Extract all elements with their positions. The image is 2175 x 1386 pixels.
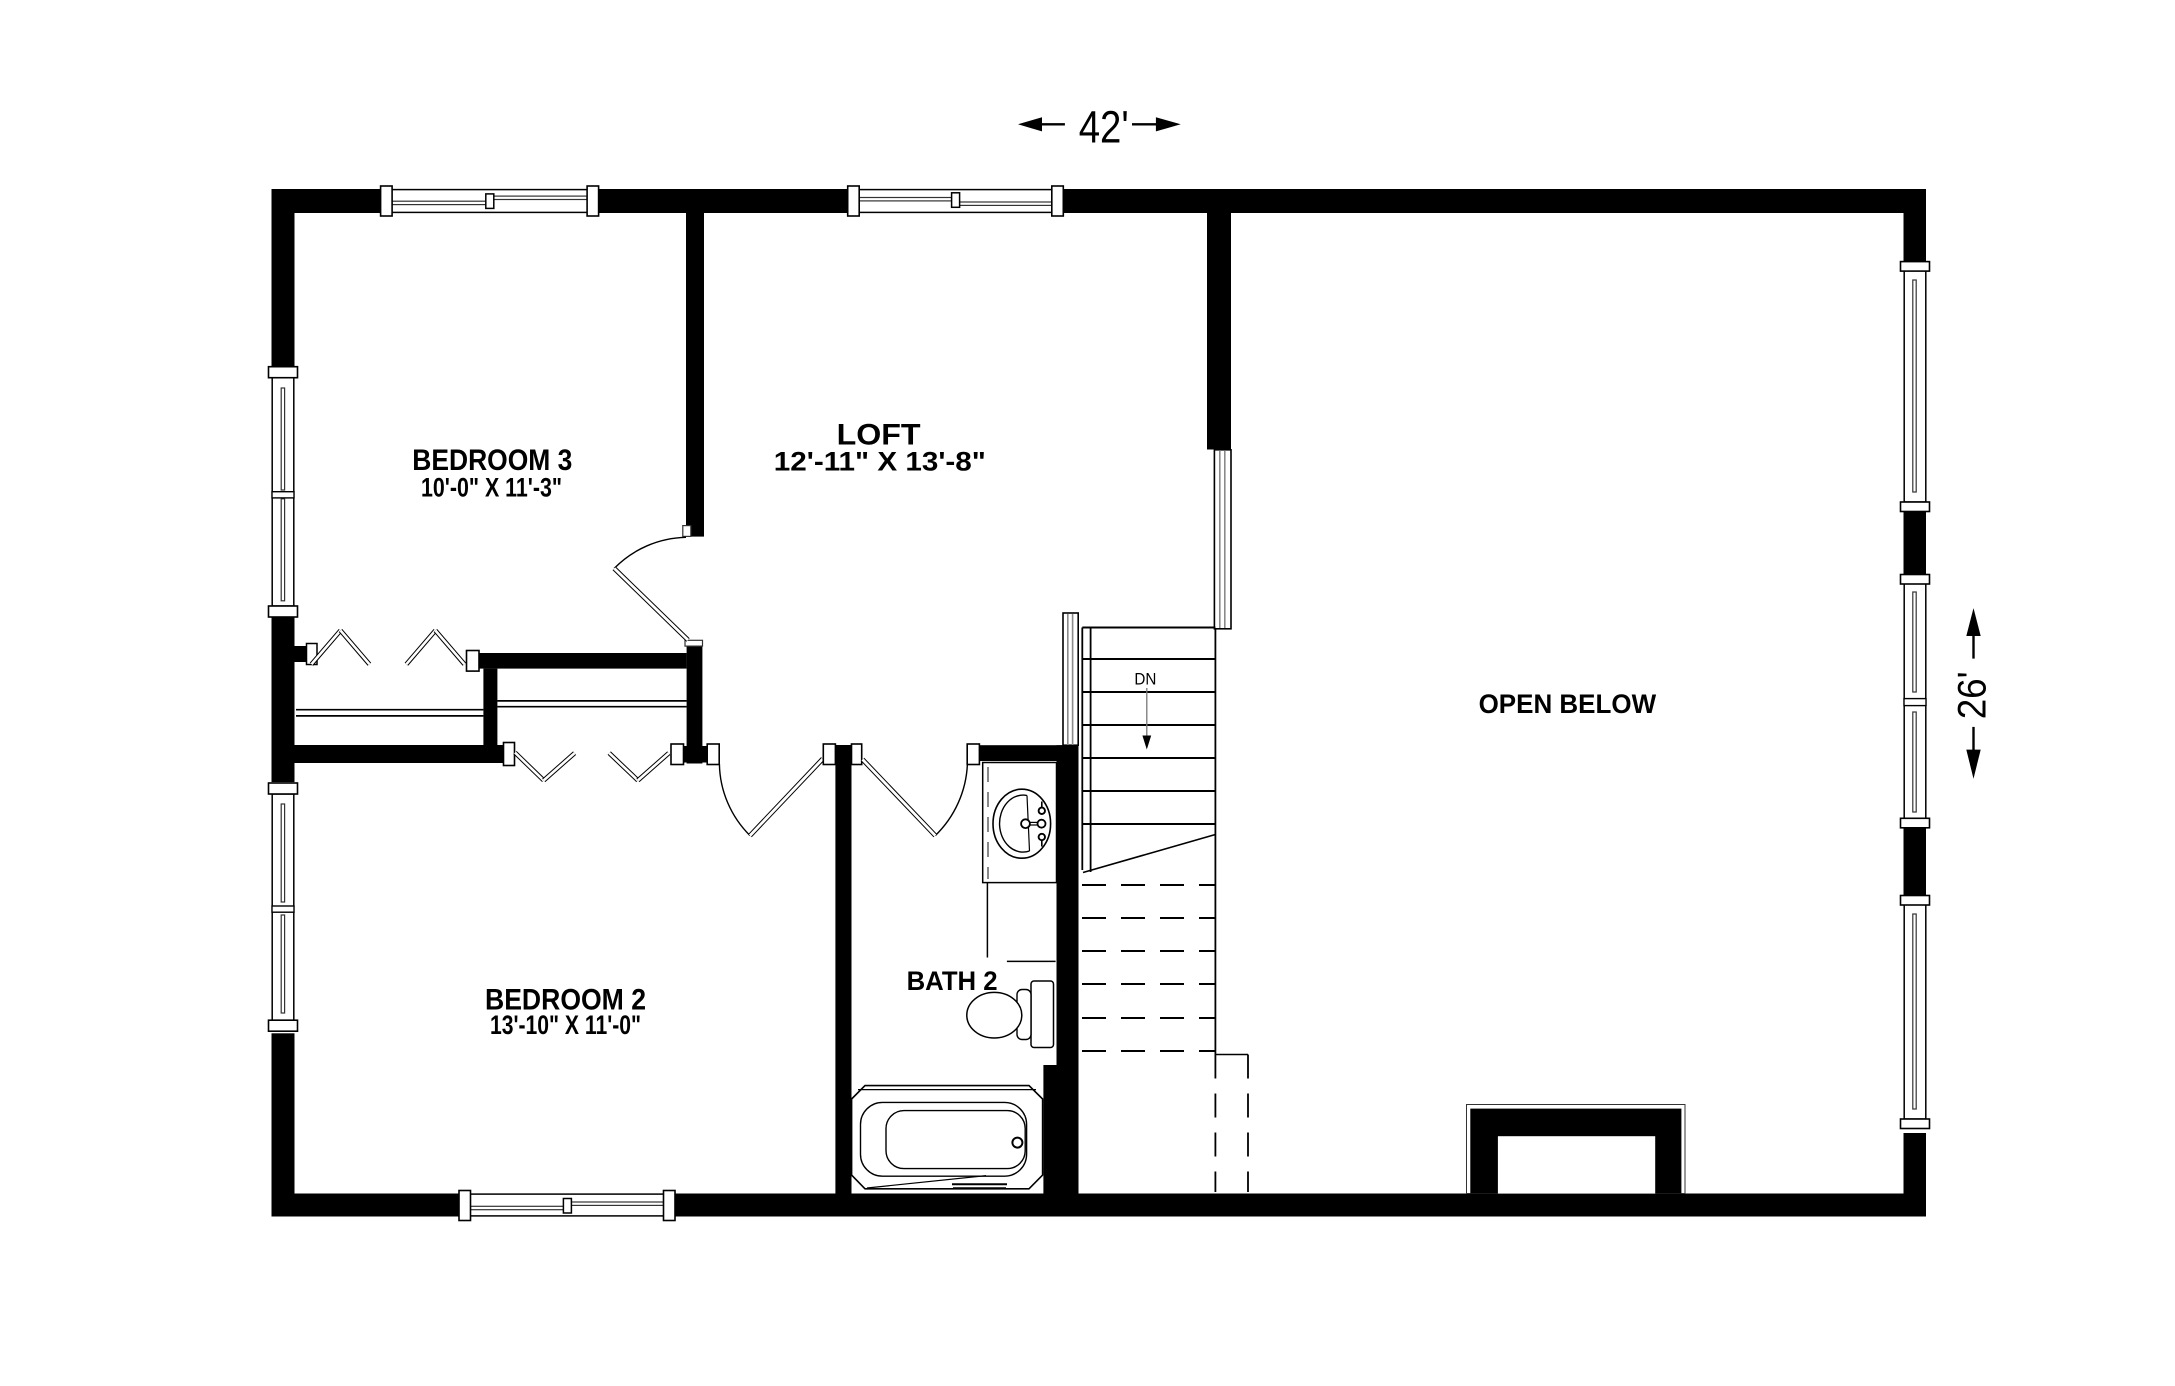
svg-text:42': 42' (1079, 102, 1129, 153)
svg-text:OPEN BELOW: OPEN BELOW (1479, 689, 1657, 719)
svg-text:BATH 2: BATH 2 (907, 966, 998, 996)
svg-text:13'-10" X 11'-0": 13'-10" X 11'-0" (490, 1010, 641, 1040)
svg-text:DN: DN (1134, 670, 1156, 689)
svg-text:10'-0" X 11'-3": 10'-0" X 11'-3" (421, 472, 562, 502)
svg-text:26': 26' (1951, 671, 1995, 719)
svg-text:12'-11" X 13'-8": 12'-11" X 13'-8" (774, 446, 986, 476)
